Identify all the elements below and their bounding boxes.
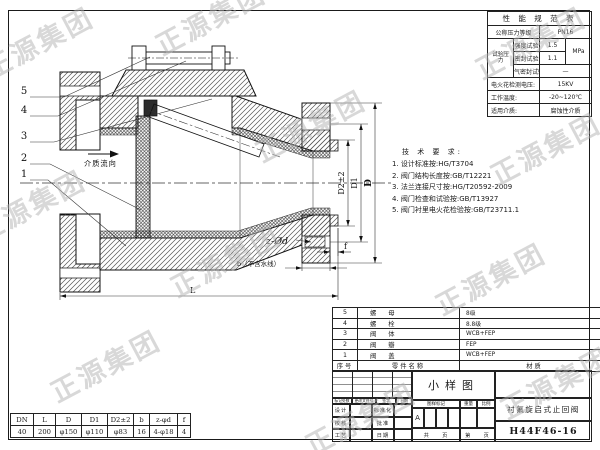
drawing-sheet: 介质流向 5 4 3 2 1	[0, 0, 600, 450]
sign-process-field[interactable]	[350, 429, 372, 442]
dim-label-D: D	[364, 179, 374, 187]
tech-requirement-item: 5. 阀门衬里电火花检验按:GB/T23711.1	[392, 205, 587, 216]
tech-requirement-item: 3. 法兰连接尺寸按:HG/T20592-2009	[392, 182, 587, 193]
mark-cell	[436, 408, 448, 428]
mark-header: 图样标记	[412, 400, 460, 408]
table-row: 5 螺 母 8级	[333, 308, 600, 319]
title-block-blank-cell	[495, 370, 592, 398]
product-name: 衬氟旋启式止回阀	[495, 398, 592, 421]
table-row: 4 螺 栓 8.8级	[333, 318, 600, 329]
sign-design-label: 设计	[332, 404, 350, 417]
tech-requirement-item: 1. 设计标准按:HG/T3704	[392, 159, 587, 170]
dim-label-f: f	[344, 242, 348, 251]
dimension-value-row: 40 200 φ150 φ110 φ83 16 4-φ18 4	[11, 426, 191, 438]
sign-standard-field[interactable]	[394, 404, 412, 417]
mark-cell	[424, 408, 436, 428]
sign-process-label: 工艺	[332, 429, 350, 442]
tech-requirements-title: 技 术 要 求:	[402, 147, 587, 158]
air-seal-test-value: —	[540, 65, 592, 78]
air-seal-test-label: 气密封试验	[514, 65, 540, 78]
bonnet-bolt	[128, 46, 238, 70]
model-number: H44F46-16	[495, 421, 592, 442]
left-flange	[60, 72, 100, 292]
flow-label: 介质流向	[84, 159, 117, 168]
balloon-1: 1	[21, 169, 27, 180]
strength-test-value: 1.5	[540, 39, 566, 52]
balloon-5: 5	[21, 86, 27, 97]
sample-drawing-label: 小样图	[412, 370, 495, 400]
dim-label-L: L	[190, 286, 196, 295]
performance-spec-table: 性 能 规 范 表 公称压力等级 PN16 试验压力 强度试验 1.5 MPa …	[487, 11, 592, 117]
work-temp-label: 工作温度:	[488, 91, 540, 104]
balloon-3: 3	[21, 131, 27, 142]
flange-bolt-section	[305, 237, 325, 247]
dimension-table: DN L D D1 D2±2 b z-φd f 40 200 φ150 φ110…	[10, 413, 191, 438]
dim-label-D1: D1	[350, 177, 359, 189]
dim-label-b: b（不含水线）	[237, 259, 280, 268]
dimension-header-row: DN L D D1 D2±2 b z-φd f	[11, 414, 191, 426]
medium-label: 适用介质:	[488, 104, 540, 117]
pressure-unit: MPa	[566, 39, 592, 65]
medium-value: 腐蚀性介质	[540, 104, 592, 117]
work-temp-value: -20~120℃	[540, 91, 592, 104]
dim-label-D2: D2±2	[337, 171, 346, 194]
sign-date-label: 日期	[372, 429, 394, 442]
pages-total: 共 页	[412, 428, 460, 442]
title-block: 标记处数 更改文件号 签字 日期 设计 标准化 校核 批准 工艺 日期 小样图 …	[332, 370, 592, 442]
technical-requirements: 技 术 要 求: 1. 设计标准按:HG/T3704 2. 阀门结构长度按:GB…	[392, 147, 587, 216]
scale-value	[477, 408, 495, 428]
sign-approve-field[interactable]	[394, 417, 412, 430]
pn-label: 公称压力等级	[488, 26, 540, 39]
sign-check-field[interactable]	[350, 417, 372, 430]
test-pressure-label: 试验压力	[488, 39, 514, 78]
sign-check-label: 校核	[332, 417, 350, 430]
spark-voltage-label: 电火花检测电压:	[488, 78, 540, 91]
revision-grid	[332, 370, 412, 398]
weight-header: 重量	[460, 400, 477, 408]
valve-disc	[136, 116, 150, 238]
strength-test-label: 强度试验	[514, 39, 540, 52]
table-row: 3 阀 体 WCB+FEP	[333, 329, 600, 340]
mark-value: A	[412, 408, 424, 428]
scale-header: 比例	[477, 400, 495, 408]
parts-list: 5 螺 母 8级 4 螺 栓 8.8级 3 阀 体 WCB+FEP 2 阀 瓣 …	[332, 307, 600, 372]
tech-requirement-item: 4. 阀门检查和试验按:GB/T13927	[392, 194, 587, 205]
balloon-4: 4	[21, 105, 27, 116]
tech-requirement-item: 2. 阀门结构长度按:GB/T12221	[392, 171, 587, 182]
seal-test-label: 密封试验	[514, 52, 540, 65]
pages-current: 第 页	[460, 428, 495, 442]
seal-test-value: 1.1	[540, 52, 566, 65]
flow-arrow: 介质流向	[84, 151, 119, 169]
table-row: 2 阀 瓣 FEP	[333, 339, 600, 350]
dim-label-z-holes: z-Ød	[265, 236, 288, 247]
sign-approve-label: 批准	[372, 417, 394, 430]
spec-title: 性 能 规 范 表	[488, 12, 592, 26]
spark-voltage-value: 15KV	[540, 78, 592, 91]
mark-cell	[448, 408, 460, 428]
bonnet-cover	[112, 70, 256, 96]
table-row: 1 阀 盖 WCB+FEP	[333, 350, 600, 361]
sign-date-field[interactable]	[394, 429, 412, 442]
weight-value	[460, 408, 477, 428]
left-flange-bolt-hole	[60, 86, 100, 96]
pn-value: PN16	[540, 26, 592, 39]
sign-design-field[interactable]	[350, 404, 372, 417]
balloon-2: 2	[21, 153, 27, 164]
sign-standard-label: 标准化	[372, 404, 394, 417]
